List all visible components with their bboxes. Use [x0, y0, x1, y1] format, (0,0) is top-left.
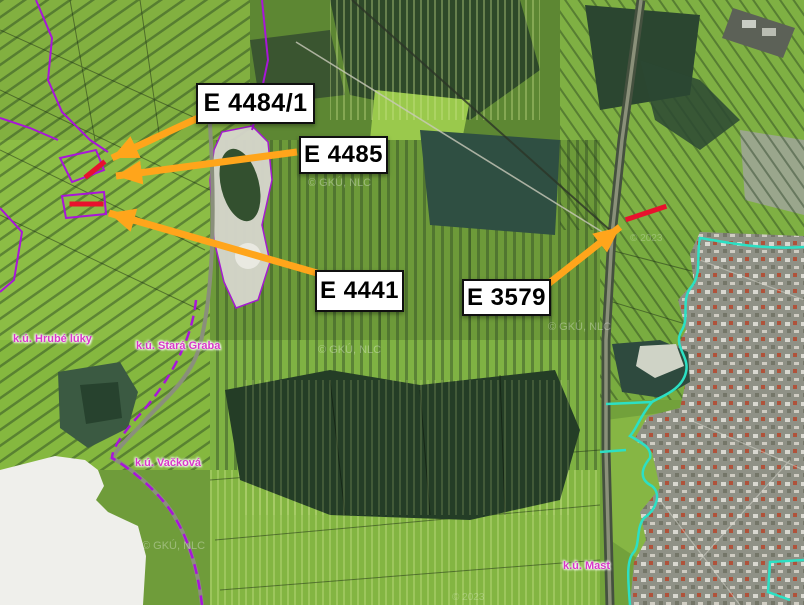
attribution-watermark: © GKÚ, NLC — [142, 539, 205, 552]
parcel-label-e4441: E 4441 — [315, 270, 404, 312]
parcel-label-e3579: E 3579 — [462, 279, 551, 316]
cadastre-label-vackova: k.ú. Vačková — [135, 457, 201, 469]
year-watermark: © 2023 — [452, 592, 485, 603]
year-watermark: © 2023 — [630, 233, 663, 244]
parcel-label-e4484-1: E 4484/1 — [196, 83, 315, 124]
map-viewport[interactable]: © GKÚ, NLC © GKÚ, NLC © GKÚ, NLC © GKÚ, … — [0, 0, 804, 605]
attribution-watermark: © GKÚ, NLC — [308, 176, 371, 189]
cadastre-label-hrube-luky: k.ú. Hrubé lúky — [13, 333, 92, 345]
parcel-label-e4485: E 4485 — [299, 136, 388, 174]
cadastre-label-mast: k.ú. Mast — [563, 560, 610, 572]
attribution-watermark: © GKÚ, NLC — [548, 320, 611, 333]
cadastre-label-stara-graba: k.ú. Stará Graba — [136, 340, 220, 352]
attribution-watermark: © GKÚ, NLC — [318, 343, 381, 356]
